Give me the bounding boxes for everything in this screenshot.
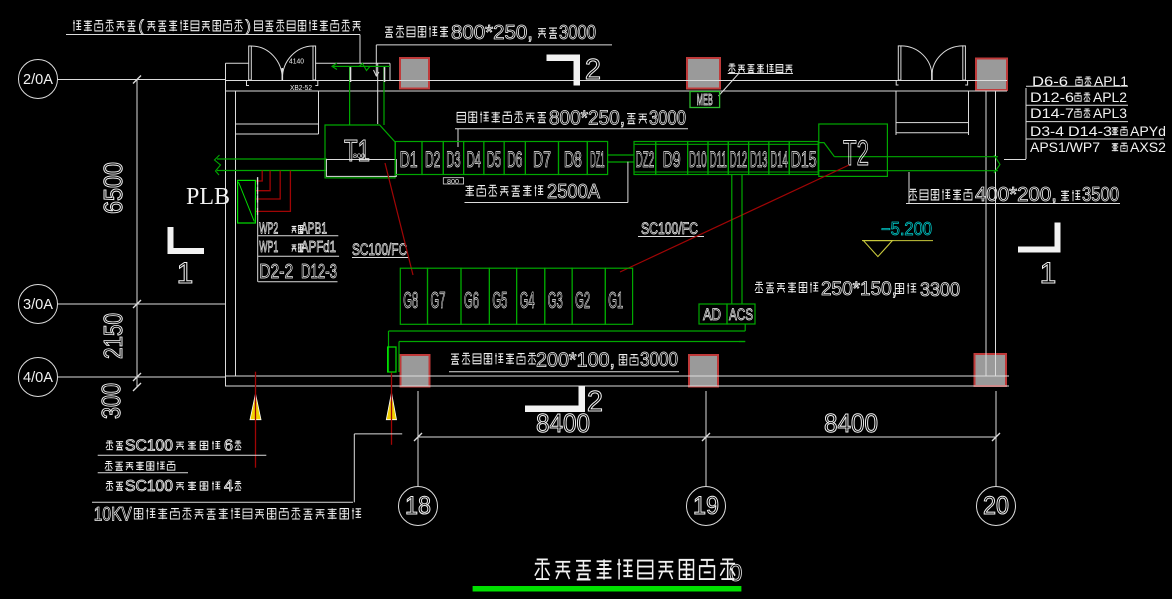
svg-text:D2: D2 (425, 147, 440, 172)
svg-text:D7: D7 (533, 147, 551, 172)
svg-text:PLB: PLB (186, 184, 230, 210)
svg-text:(: ( (138, 18, 144, 35)
svg-text:D5: D5 (487, 147, 501, 172)
svg-text:SC100: SC100 (125, 478, 173, 495)
svg-text:D14: D14 (770, 147, 787, 172)
svg-text:800: 800 (353, 153, 365, 160)
svg-text:AXS2: AXS2 (1130, 139, 1166, 155)
svg-text:D12-6: D12-6 (1030, 89, 1074, 105)
svg-text:250*150,: 250*150, (821, 279, 897, 300)
svg-text:6500: 6500 (98, 162, 128, 214)
svg-text:3/0A: 3/0A (23, 297, 53, 313)
svg-text:MEB: MEB (697, 92, 713, 109)
svg-text:APL3: APL3 (1093, 105, 1127, 121)
svg-text:G2: G2 (575, 287, 590, 313)
svg-text:D8: D8 (564, 147, 582, 172)
svg-text:D13: D13 (750, 147, 767, 172)
svg-text:G4: G4 (520, 287, 535, 313)
svg-text:G1: G1 (608, 287, 623, 313)
svg-text:D10: D10 (689, 147, 706, 172)
svg-text:ACS: ACS (729, 305, 753, 324)
svg-text:T1: T1 (344, 133, 370, 168)
svg-text:4: 4 (224, 478, 233, 495)
svg-text:2/0A: 2/0A (23, 72, 53, 88)
svg-text:D11: D11 (710, 147, 727, 172)
svg-text:D12: D12 (730, 147, 747, 172)
svg-text:D14-3: D14-3 (1068, 123, 1112, 139)
svg-text:400*200,: 400*200, (975, 184, 1057, 206)
svg-text:20: 20 (983, 492, 1009, 520)
svg-text:200*100,: 200*100, (536, 350, 615, 372)
svg-text:D1: D1 (400, 147, 418, 172)
svg-text:D15: D15 (791, 147, 817, 172)
svg-text:APL2: APL2 (1093, 89, 1127, 105)
svg-text:3000: 3000 (640, 349, 678, 371)
svg-text:D3: D3 (446, 147, 460, 172)
svg-text:WP2: WP2 (259, 221, 278, 238)
svg-text:4140: 4140 (289, 59, 304, 66)
svg-text:D3-4: D3-4 (1030, 123, 1064, 139)
svg-text:1: 1 (177, 257, 194, 290)
svg-text:G7: G7 (431, 287, 446, 313)
svg-text:300: 300 (96, 383, 126, 419)
svg-text:D6: D6 (507, 147, 522, 172)
svg-text:18: 18 (405, 492, 431, 520)
svg-text:19: 19 (693, 492, 719, 520)
svg-text:3300: 3300 (920, 280, 960, 301)
svg-text:DZ1: DZ1 (590, 147, 604, 172)
svg-text:2: 2 (585, 54, 601, 86)
svg-text:): ) (246, 18, 251, 35)
svg-text:APYd: APYd (1130, 123, 1166, 139)
svg-text:6: 6 (224, 438, 233, 455)
svg-text:1: 1 (1040, 257, 1057, 290)
svg-text:G6: G6 (464, 287, 479, 313)
svg-text:D2-2: D2-2 (259, 261, 293, 283)
svg-text:0: 0 (729, 560, 742, 587)
svg-text:2500A: 2500A (547, 181, 601, 203)
svg-text:G8: G8 (403, 287, 418, 313)
svg-text:8400: 8400 (536, 408, 590, 438)
svg-text:SC100/FC: SC100/FC (641, 219, 698, 238)
svg-text:−5.200: −5.200 (881, 219, 932, 239)
svg-text:WP1: WP1 (259, 239, 278, 256)
svg-text:T2: T2 (843, 134, 869, 173)
svg-text:G5: G5 (492, 287, 507, 313)
svg-text:4/0A: 4/0A (23, 370, 53, 386)
svg-text:AD: AD (703, 305, 721, 324)
svg-text:2: 2 (587, 386, 603, 418)
svg-text:DZ2: DZ2 (636, 147, 655, 172)
svg-text:3500: 3500 (1082, 184, 1119, 206)
svg-text:2150: 2150 (98, 313, 128, 359)
svg-text:D14-7: D14-7 (1030, 105, 1074, 121)
svg-text:D12-3: D12-3 (301, 261, 337, 283)
svg-text:APS1/WP7: APS1/WP7 (1030, 139, 1100, 155)
svg-text:APFd1: APFd1 (301, 239, 336, 256)
svg-text:10KV: 10KV (94, 505, 132, 526)
svg-text:D4: D4 (467, 147, 481, 172)
svg-text:G3: G3 (548, 287, 563, 313)
svg-text:8400: 8400 (824, 408, 878, 438)
svg-text:800: 800 (447, 179, 459, 186)
svg-text:APB1: APB1 (301, 221, 327, 238)
svg-text:SC100/FC: SC100/FC (352, 240, 407, 259)
svg-text:3000: 3000 (559, 22, 596, 44)
svg-text:SC100: SC100 (125, 438, 173, 455)
svg-text:3000: 3000 (649, 108, 686, 130)
svg-text:800*250,: 800*250, (549, 108, 625, 130)
svg-text:800*250,: 800*250, (451, 22, 533, 44)
svg-text:D9: D9 (663, 147, 681, 172)
